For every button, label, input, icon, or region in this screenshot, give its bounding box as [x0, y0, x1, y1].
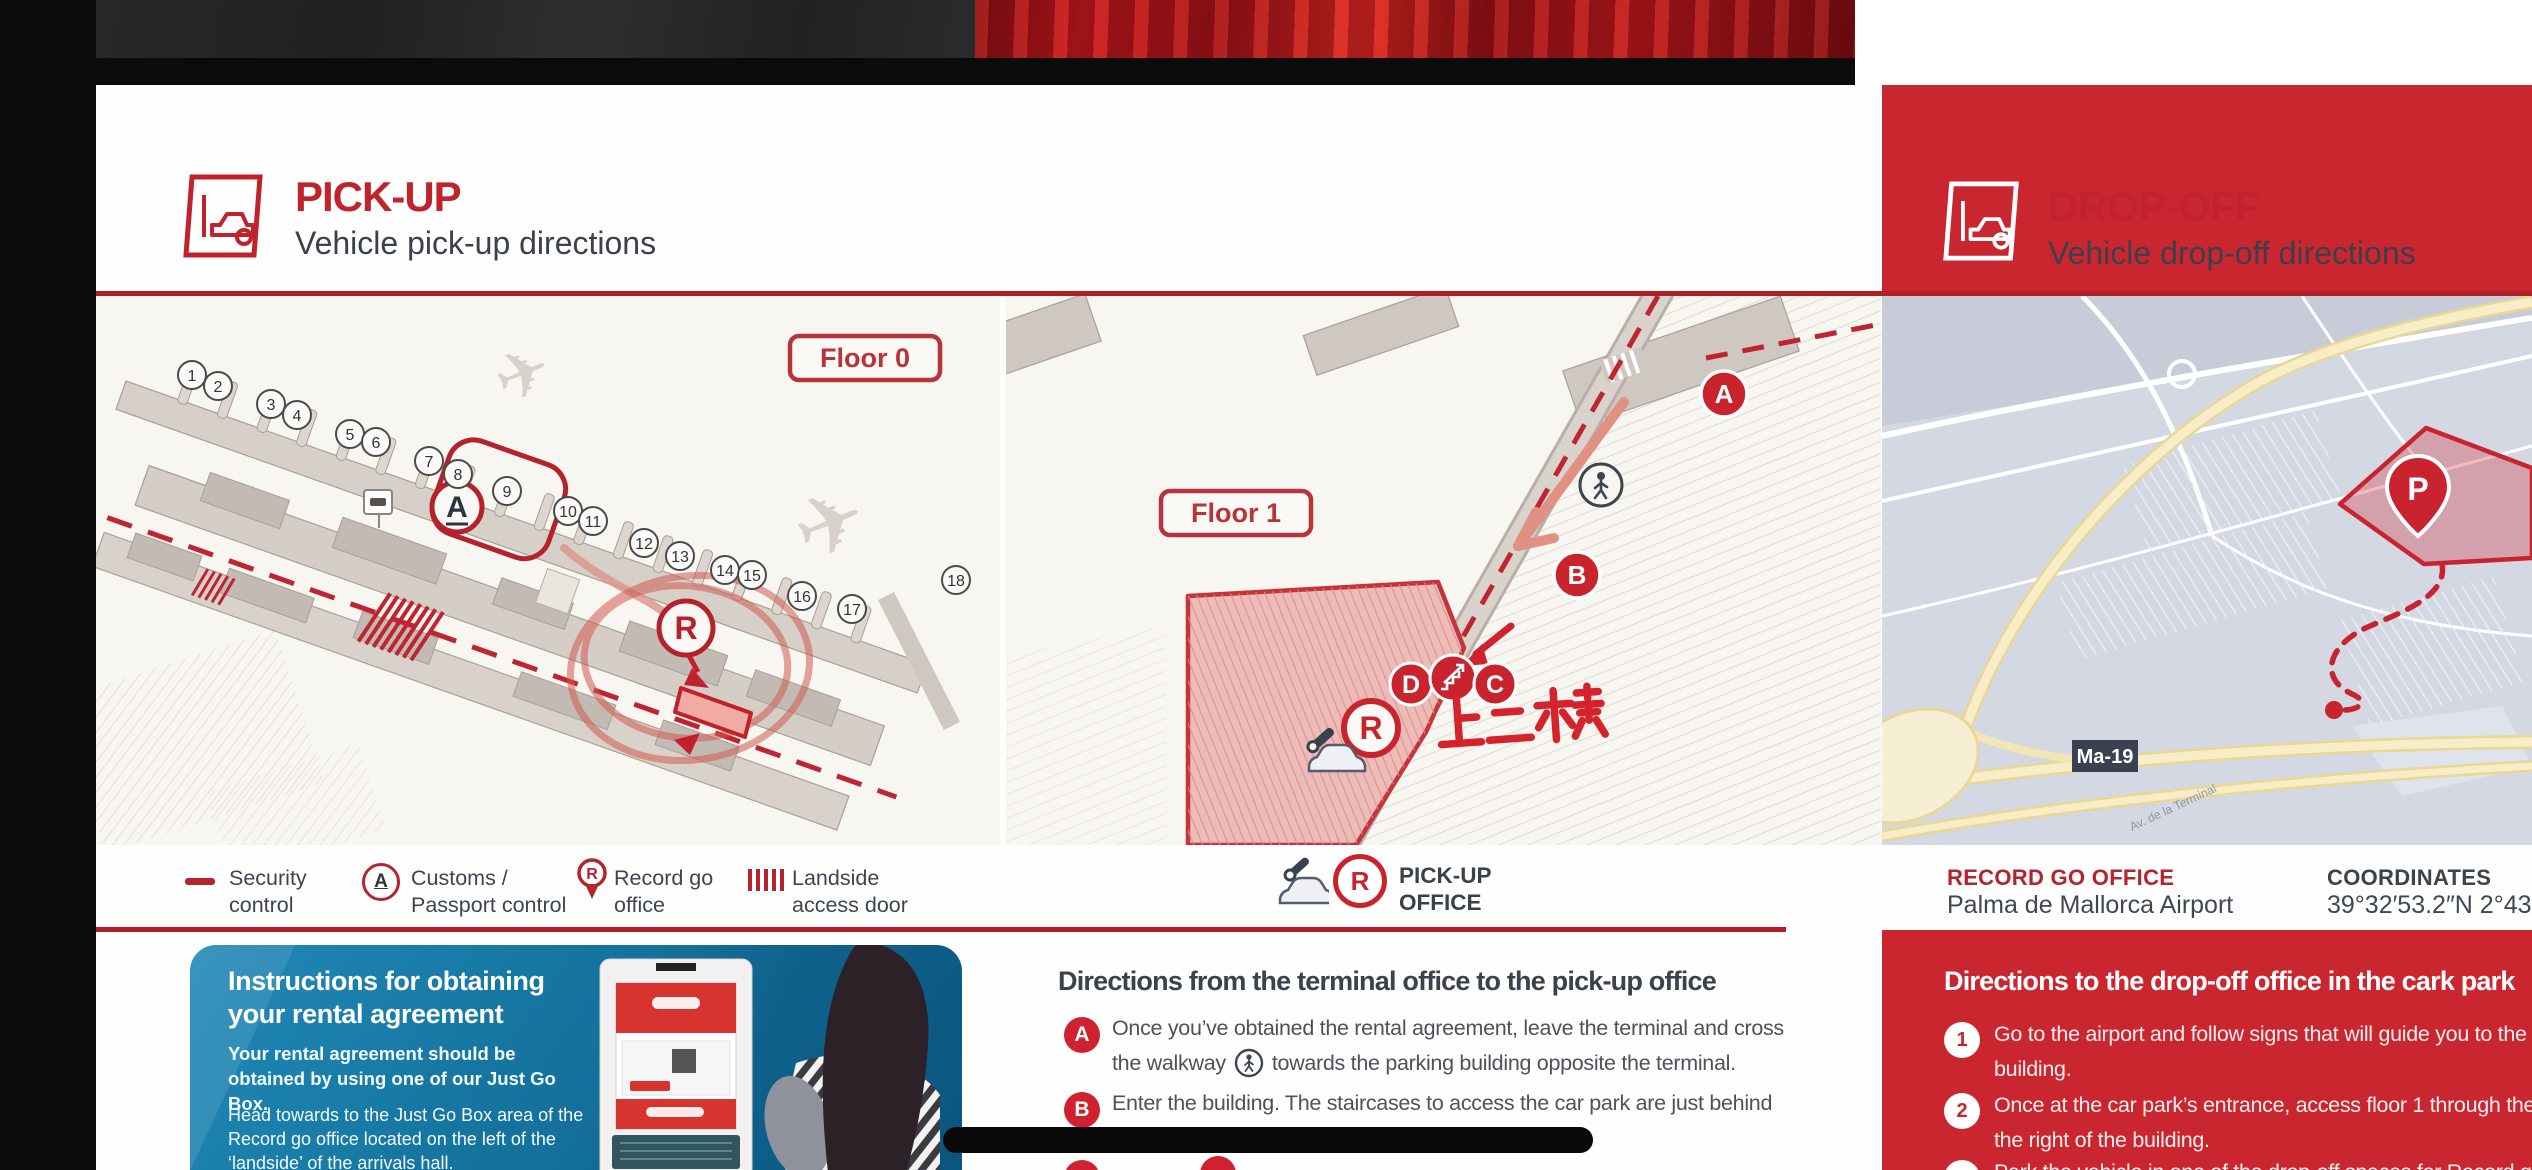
legend-security: Securitycontrol — [229, 865, 307, 919]
gate-number: 9 — [503, 484, 512, 501]
gate-number: 12 — [635, 536, 653, 553]
pickup-title: PICK-UP — [295, 173, 461, 221]
dropoff-subtitle: Vehicle drop-off directions — [2048, 235, 2416, 272]
legend-record-go: Record gooffice — [614, 865, 713, 919]
gate-number: 11 — [585, 514, 602, 531]
gate-number: 10 — [559, 504, 577, 521]
floor1-map: A B D — [1006, 296, 1881, 845]
record-go-office-label: RECORD GO OFFICE — [1947, 865, 2174, 891]
marker-a: A — [1701, 371, 1747, 417]
svg-text:A: A — [1715, 379, 1734, 409]
gate-number: 8 — [454, 467, 463, 484]
gate-number: 1 — [188, 368, 197, 385]
svg-text:P: P — [2407, 471, 2428, 507]
dropoff-car-icon — [1942, 180, 2022, 267]
dropoff-step-3-badge: 3 — [1944, 1160, 1980, 1170]
road-badge: Ma-19 — [2072, 740, 2138, 772]
terminal-directions-title: Directions from the terminal office to t… — [1058, 966, 1716, 997]
floor0-map: ✈ ✈ — [96, 296, 1000, 845]
floor0-badge: Floor 0 — [790, 336, 940, 380]
svg-text:R: R — [586, 866, 598, 883]
gate-number: 16 — [793, 589, 811, 606]
top-photo-red — [975, 0, 1855, 58]
gate-number: 4 — [293, 408, 302, 425]
svg-text:A: A — [446, 491, 468, 524]
dropoff-directions-title: Directions to the drop-off office in the… — [1944, 966, 2515, 997]
svg-text:B: B — [1568, 560, 1587, 590]
svg-text:Floor 0: Floor 0 — [820, 343, 910, 373]
redaction-bar — [943, 1127, 1593, 1153]
customs-a-icon: A — [362, 863, 400, 901]
instructions-box: Instructions for obtaining your rental a… — [190, 945, 962, 1170]
top-photo-dark — [96, 0, 975, 58]
legend-customs: Customs /Passport control — [411, 865, 566, 919]
pedestrian-walkway-icon — [1234, 1048, 1264, 1089]
step-c-badge-partial — [1064, 1160, 1100, 1170]
coordinates-value: 39°32′53.2″N 2°43′50. — [2327, 891, 2532, 920]
instructions-paragraph-2: Head towards to the Just Go Box area of … — [228, 1103, 584, 1170]
marker-c: C — [1474, 663, 1516, 705]
svg-text:Ma-19: Ma-19 — [2077, 746, 2134, 768]
gate-number: 6 — [372, 435, 381, 452]
page-body: PICK-UP Vehicle pick-up directions DROP-… — [96, 85, 2532, 1170]
gate-number: 5 — [346, 427, 355, 444]
marker-d: D — [1390, 663, 1432, 705]
record-go-pin-icon: R — [573, 857, 611, 910]
legend-pickup-office: PICK-UPOFFICE — [1399, 862, 1492, 916]
svg-text:C: C — [1486, 671, 1504, 699]
key-car-icon — [1277, 855, 1329, 910]
brochure-page: PICK-UP Vehicle pick-up directions DROP-… — [0, 0, 2532, 1170]
svg-text:R: R — [1359, 710, 1382, 746]
gate-number: 17 — [843, 602, 861, 619]
gate-number: 2 — [214, 379, 223, 396]
just-go-box-photo — [560, 945, 962, 1170]
legend-divider-rule — [96, 927, 1786, 932]
customs-marker-a: A — [432, 482, 482, 532]
pickup-subtitle: Vehicle pick-up directions — [295, 225, 656, 262]
step-d-badge-partial — [1200, 1156, 1236, 1170]
gate-number: 14 — [716, 563, 734, 580]
pickup-office-marker-r: R — [1344, 701, 1398, 755]
stairs-icon — [1430, 655, 1476, 701]
route-start-dot — [2325, 701, 2343, 719]
record-office-marker-r: R — [659, 601, 713, 655]
coordinates-label: COORDINATES — [2327, 865, 2491, 891]
gate-number: 3 — [267, 397, 276, 414]
dropoff-step-3-text: Park the vehicle in one of the drop-off … — [1994, 1155, 2532, 1170]
dropoff-directions-panel: Directions to the drop-off office in the… — [1882, 930, 2532, 1170]
dropoff-street-map: P Ma-19 Av. de la Terminal — [1882, 296, 2532, 845]
record-go-office-value: Palma de Mallorca Airport — [1947, 891, 2233, 920]
legend-landside: Landsideaccess door — [792, 865, 908, 919]
marker-b: B — [1554, 552, 1600, 598]
svg-text:Floor 1: Floor 1 — [1191, 498, 1281, 528]
dropoff-step-1-text: Go to the airport and follow signs that … — [1994, 1017, 2532, 1087]
svg-text:D: D — [1402, 671, 1420, 699]
step-a-badge: A — [1064, 1017, 1100, 1053]
gate-number: 13 — [671, 549, 689, 566]
pedestrian-icon — [1580, 464, 1622, 506]
step-b-badge: B — [1064, 1092, 1100, 1128]
gate-number: 18 — [947, 573, 965, 590]
security-control-icon — [185, 878, 215, 885]
gate-number: 15 — [743, 568, 761, 585]
dropoff-step-1-badge: 1 — [1944, 1022, 1980, 1058]
step-a-text: Once you’ve obtained the rental agreemen… — [1112, 1011, 1784, 1089]
dropoff-step-2-text: Once at the car park’s entrance, access … — [1994, 1088, 2532, 1158]
instructions-title: Instructions for obtaining your rental a… — [228, 965, 545, 1031]
gate-number: 7 — [425, 454, 434, 471]
floor1-badge: Floor 1 — [1161, 491, 1311, 535]
pickup-car-icon — [182, 173, 266, 264]
top-corner-blank — [1855, 0, 2532, 86]
svg-text:R: R — [674, 610, 697, 646]
dropoff-title: DROP-OFF — [2048, 183, 2259, 231]
dropoff-step-2-badge: 2 — [1944, 1093, 1980, 1129]
landside-hatch-icon — [748, 869, 784, 891]
person-hair — [823, 945, 929, 1170]
pickup-office-r-icon: R — [1333, 854, 1387, 908]
